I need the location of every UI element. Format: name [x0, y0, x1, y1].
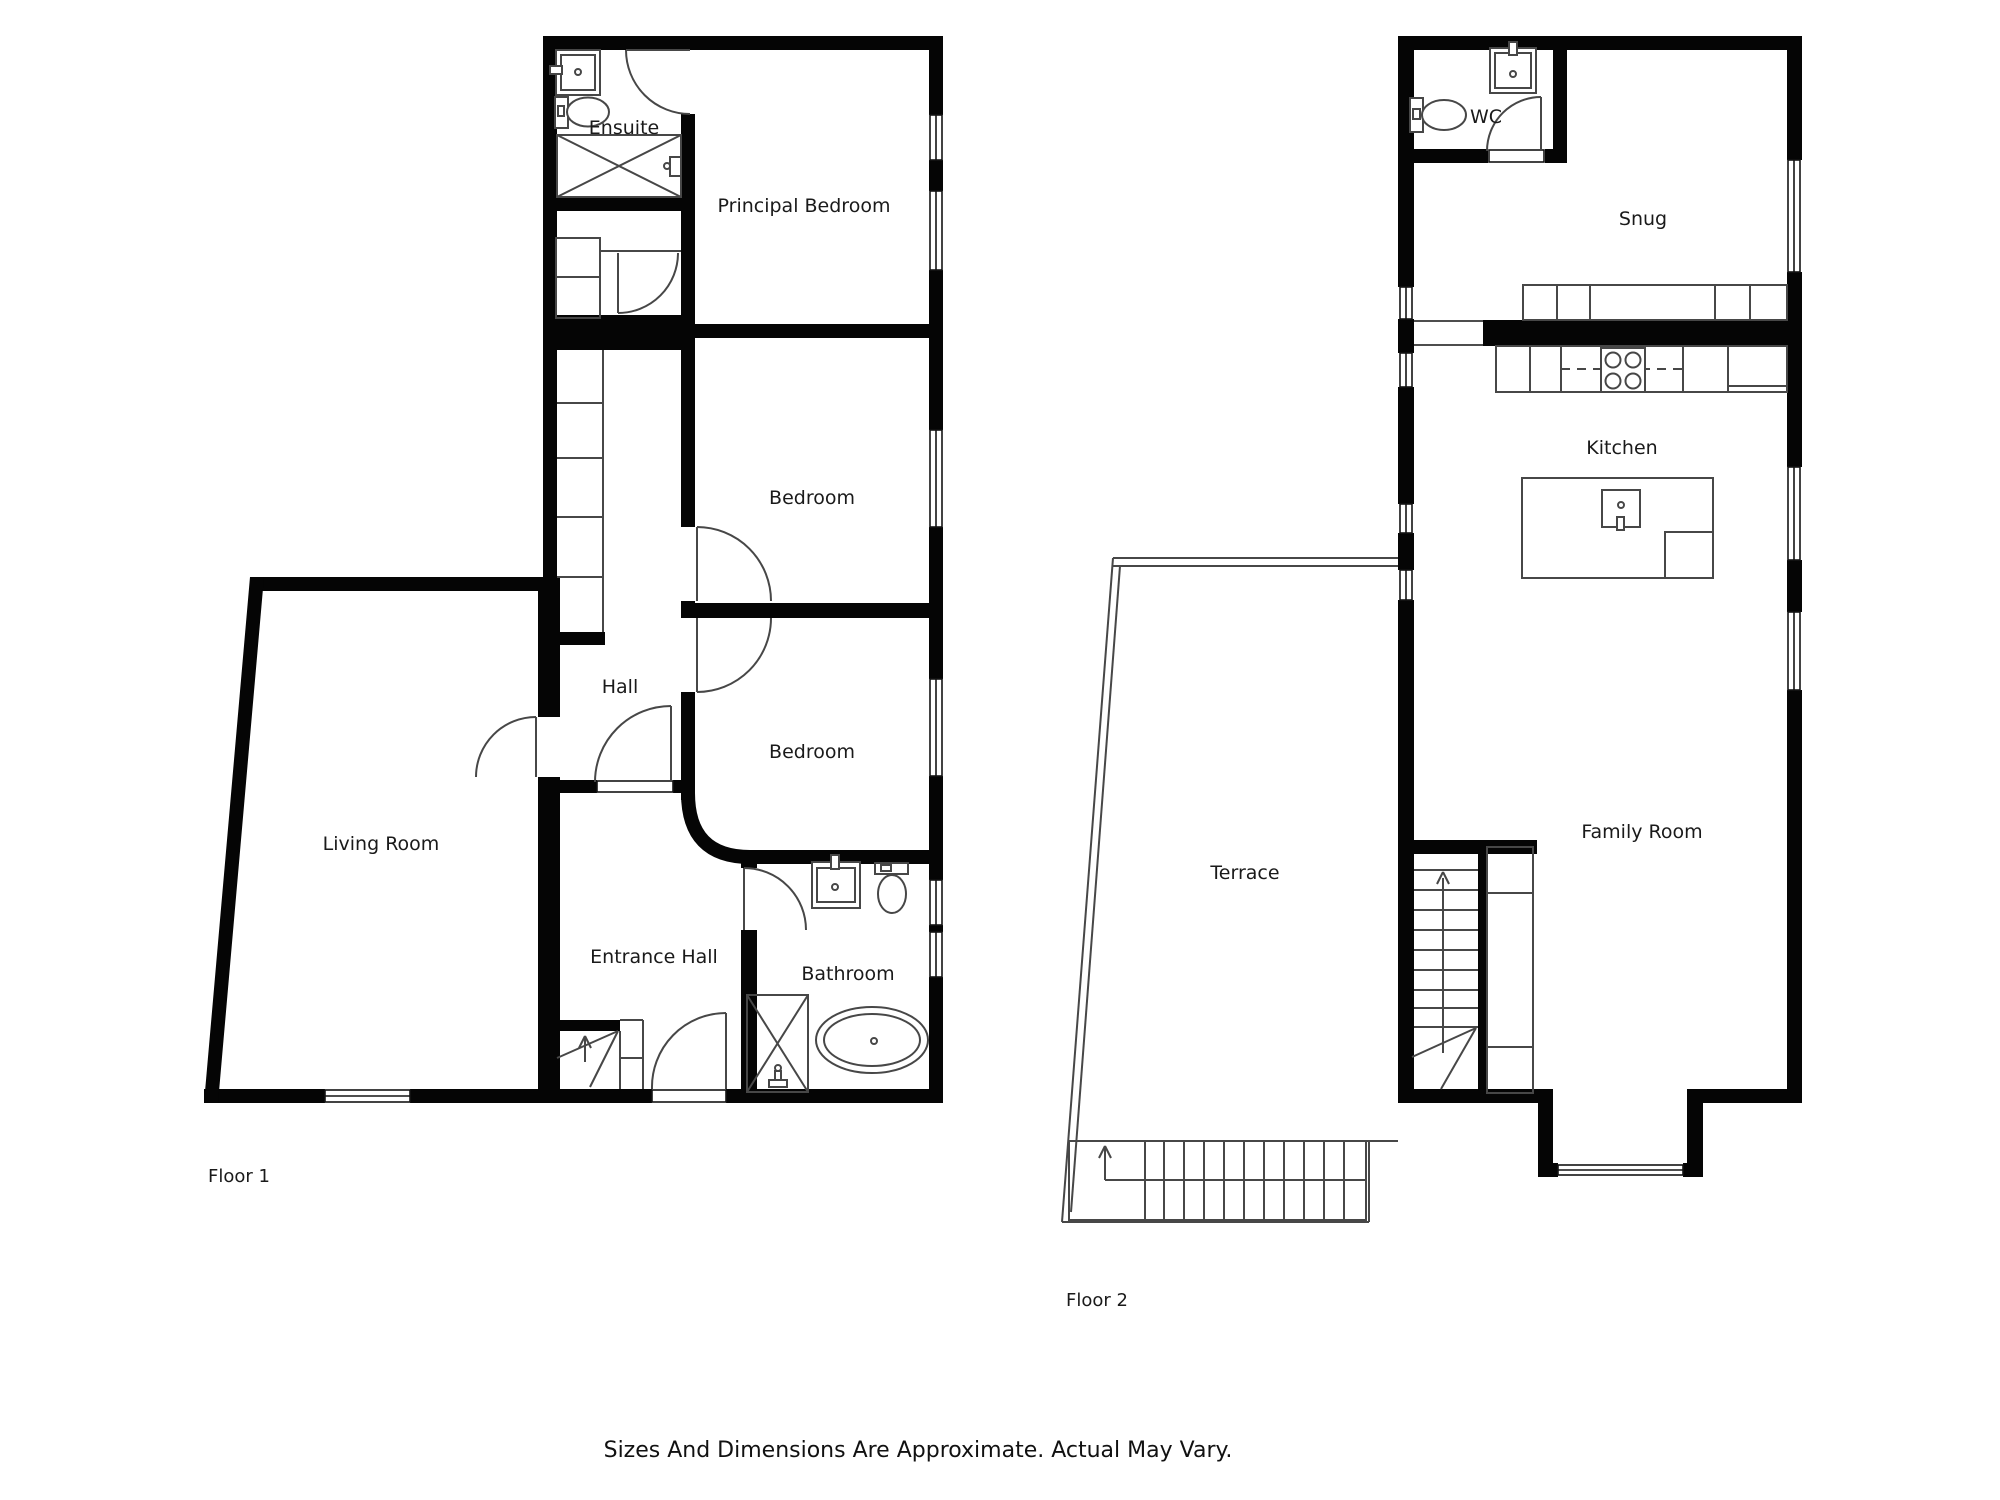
floor2-windows	[1400, 150, 1800, 1175]
window-icon	[930, 191, 942, 270]
wc-door-threshold	[1489, 150, 1544, 162]
terrace-outline	[1062, 558, 1398, 1222]
window-icon	[1400, 504, 1412, 533]
door-arc-icon	[626, 50, 690, 114]
floor2-plan: WC Snug Kitchen Terrace Family Room Floo…	[1062, 36, 1802, 1311]
window-icon	[930, 880, 942, 925]
terrace-steps-icon	[1069, 1141, 1366, 1220]
door-arc-icon	[476, 717, 536, 777]
hall-door-threshold	[597, 781, 673, 792]
room-label-kitchen: Kitchen	[1586, 437, 1657, 459]
front-door-threshold	[652, 1090, 726, 1102]
room-label-entrance-hall: Entrance Hall	[590, 946, 718, 968]
disclaimer-caption: Sizes And Dimensions Are Approximate. Ac…	[604, 1438, 1233, 1463]
window-icon	[1400, 287, 1412, 319]
room-label-family-room: Family Room	[1581, 821, 1702, 843]
bathroom-toilet-icon	[875, 863, 908, 913]
room-label-bedroom-2: Bedroom	[769, 741, 855, 763]
window-icon	[930, 430, 942, 527]
room-label-wc: WC	[1470, 106, 1502, 128]
up-arrow-icon	[579, 1036, 591, 1062]
window-icon	[930, 932, 942, 977]
room-label-principal-bedroom: Principal Bedroom	[718, 195, 891, 217]
door-arc-icon	[697, 618, 771, 692]
up-arrow-icon	[1437, 872, 1449, 1053]
floor2-title: Floor 2	[1066, 1290, 1128, 1311]
snug-counter-icon	[1523, 285, 1787, 320]
floorplan-drawing: Ensuite Principal Bedroom Bedroom Hall B…	[0, 0, 2000, 1500]
room-label-terrace: Terrace	[1209, 862, 1279, 884]
window-icon	[930, 679, 942, 776]
kitchen-counter-icon	[1496, 346, 1787, 392]
floor2-walls	[1398, 36, 1802, 1177]
ensuite-sink-icon	[550, 50, 600, 95]
bathroom-sink-icon	[812, 855, 860, 908]
floor1-title: Floor 1	[208, 1166, 270, 1187]
floorplan-page: Ensuite Principal Bedroom Bedroom Hall B…	[0, 0, 2000, 1500]
ensuite-shower-icon	[557, 135, 681, 197]
kitchen-pass-opening	[1414, 321, 1483, 345]
window-icon	[1788, 160, 1800, 272]
door-arc-icon	[744, 868, 806, 930]
window-icon	[930, 115, 942, 160]
room-label-bathroom: Bathroom	[801, 963, 894, 985]
window-icon	[1788, 612, 1800, 690]
door-arc-icon	[697, 527, 771, 601]
door-arc-icon	[600, 251, 681, 313]
room-label-living-room: Living Room	[323, 833, 440, 855]
window-icon	[1558, 1165, 1683, 1175]
door-arc-icon	[595, 706, 671, 782]
room-label-ensuite: Ensuite	[589, 117, 659, 139]
door-arc-icon	[652, 1013, 726, 1089]
window-icon	[325, 1090, 410, 1102]
wc-toilet-icon	[1410, 98, 1466, 132]
room-label-snug: Snug	[1619, 208, 1667, 230]
wc-sink-icon	[1490, 42, 1536, 93]
kitchen-island-icon	[1522, 478, 1713, 578]
room-label-hall: Hall	[602, 676, 639, 698]
room-label-bedroom-1: Bedroom	[769, 487, 855, 509]
wardrobe-icon	[556, 238, 600, 318]
window-icon	[1400, 570, 1412, 600]
up-arrow-icon	[1099, 1146, 1145, 1180]
hob-icon	[1601, 348, 1645, 392]
floor2-closet-icon	[1487, 847, 1533, 1093]
window-icon	[1788, 467, 1800, 560]
floor1-plan: Ensuite Principal Bedroom Bedroom Hall B…	[204, 36, 943, 1187]
floor2-stairs-icon	[1412, 870, 1478, 1089]
floor1-stairs-upper	[555, 350, 605, 645]
bath-icon	[816, 1007, 928, 1073]
window-icon	[1400, 353, 1412, 387]
